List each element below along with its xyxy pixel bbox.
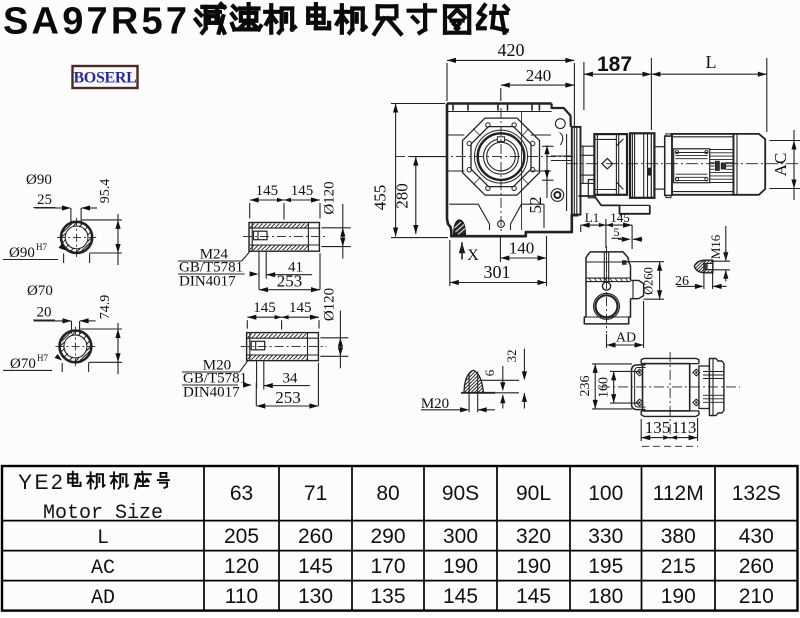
svg-text:455: 455 (371, 185, 390, 211)
svg-text:34: 34 (283, 371, 299, 387)
svg-text:Motor Size: Motor Size (43, 502, 163, 525)
svg-text:190: 190 (661, 585, 696, 608)
svg-text:145: 145 (610, 210, 630, 225)
svg-text:280: 280 (393, 183, 412, 209)
svg-text:DIN4017: DIN4017 (179, 274, 236, 290)
svg-text:145: 145 (443, 585, 478, 608)
svg-text:330: 330 (588, 525, 623, 548)
svg-text:160: 160 (597, 377, 612, 398)
svg-text:140: 140 (509, 239, 535, 258)
svg-text:290: 290 (370, 525, 405, 548)
svg-text:380: 380 (661, 525, 696, 548)
svg-text:110: 110 (225, 585, 258, 608)
svg-text:236: 236 (578, 376, 593, 397)
svg-text:130: 130 (298, 585, 333, 608)
svg-text:80: 80 (376, 482, 399, 505)
svg-text:205: 205 (224, 525, 259, 548)
svg-text:95.4: 95.4 (98, 179, 113, 204)
svg-text:Ø90: Ø90 (26, 172, 52, 188)
svg-text:H7: H7 (36, 242, 47, 252)
svg-text:BOSERL: BOSERL (73, 70, 136, 87)
svg-text:195: 195 (588, 555, 623, 578)
svg-text:190: 190 (443, 555, 478, 578)
svg-text:145: 145 (516, 585, 551, 608)
svg-text:420: 420 (498, 40, 525, 60)
svg-text:260: 260 (298, 525, 333, 548)
svg-text:AC: AC (771, 153, 790, 177)
svg-text:L1: L1 (585, 210, 599, 225)
svg-text:170: 170 (370, 555, 405, 578)
svg-text:145: 145 (289, 300, 312, 316)
svg-text:100: 100 (588, 482, 623, 505)
svg-text:M16: M16 (708, 234, 723, 259)
svg-text:AC: AC (91, 557, 115, 580)
svg-text:AD: AD (616, 331, 636, 346)
svg-text:20: 20 (37, 305, 52, 321)
svg-text:5: 5 (614, 225, 620, 239)
svg-text:180: 180 (588, 585, 623, 608)
svg-text:63: 63 (230, 482, 253, 505)
svg-text:215: 215 (661, 555, 696, 578)
svg-text:135: 135 (645, 418, 671, 437)
svg-text:430: 430 (739, 525, 774, 548)
svg-text:L: L (706, 52, 717, 72)
svg-text:X: X (467, 247, 479, 264)
svg-text:DIN4017: DIN4017 (183, 385, 240, 401)
svg-text:145: 145 (256, 183, 279, 199)
svg-text:301: 301 (484, 262, 511, 282)
svg-text:Ø260: Ø260 (642, 267, 656, 295)
svg-text:Ø70: Ø70 (10, 356, 36, 372)
svg-text:253: 253 (277, 272, 303, 291)
svg-text:260: 260 (739, 555, 774, 578)
svg-text:90L: 90L (516, 482, 551, 505)
svg-text:145: 145 (253, 300, 276, 316)
svg-text:H7: H7 (37, 353, 48, 363)
svg-text:120: 120 (224, 555, 259, 578)
svg-text:112M: 112M (653, 482, 704, 505)
svg-text:135: 135 (370, 585, 405, 608)
svg-text:190: 190 (516, 555, 551, 578)
svg-text:320: 320 (516, 525, 551, 548)
svg-text:SA97R57: SA97R57 (3, 1, 190, 43)
svg-text:Ø70: Ø70 (27, 283, 53, 299)
svg-text:240: 240 (526, 66, 552, 85)
svg-text:210: 210 (739, 585, 774, 608)
svg-text:Ø120: Ø120 (322, 181, 338, 214)
svg-text:71: 71 (304, 482, 327, 505)
svg-text:52: 52 (526, 197, 545, 214)
svg-text:145: 145 (298, 555, 333, 578)
svg-text:Ø120: Ø120 (322, 288, 338, 321)
svg-text:74.9: 74.9 (98, 295, 113, 320)
svg-text:145: 145 (291, 183, 314, 199)
svg-text:AD: AD (91, 587, 115, 610)
svg-text:6: 6 (482, 369, 497, 376)
svg-text:25: 25 (37, 192, 52, 208)
svg-text:32: 32 (504, 350, 519, 363)
svg-text:L: L (97, 527, 109, 550)
svg-text:113: 113 (672, 418, 697, 437)
svg-text:90S: 90S (442, 482, 479, 505)
svg-text:300: 300 (443, 525, 478, 548)
svg-text:253: 253 (275, 388, 301, 407)
svg-text:187: 187 (597, 53, 632, 76)
svg-text:YE2: YE2 (18, 471, 65, 494)
svg-text:132S: 132S (732, 482, 781, 505)
svg-text:Ø90: Ø90 (9, 245, 35, 261)
